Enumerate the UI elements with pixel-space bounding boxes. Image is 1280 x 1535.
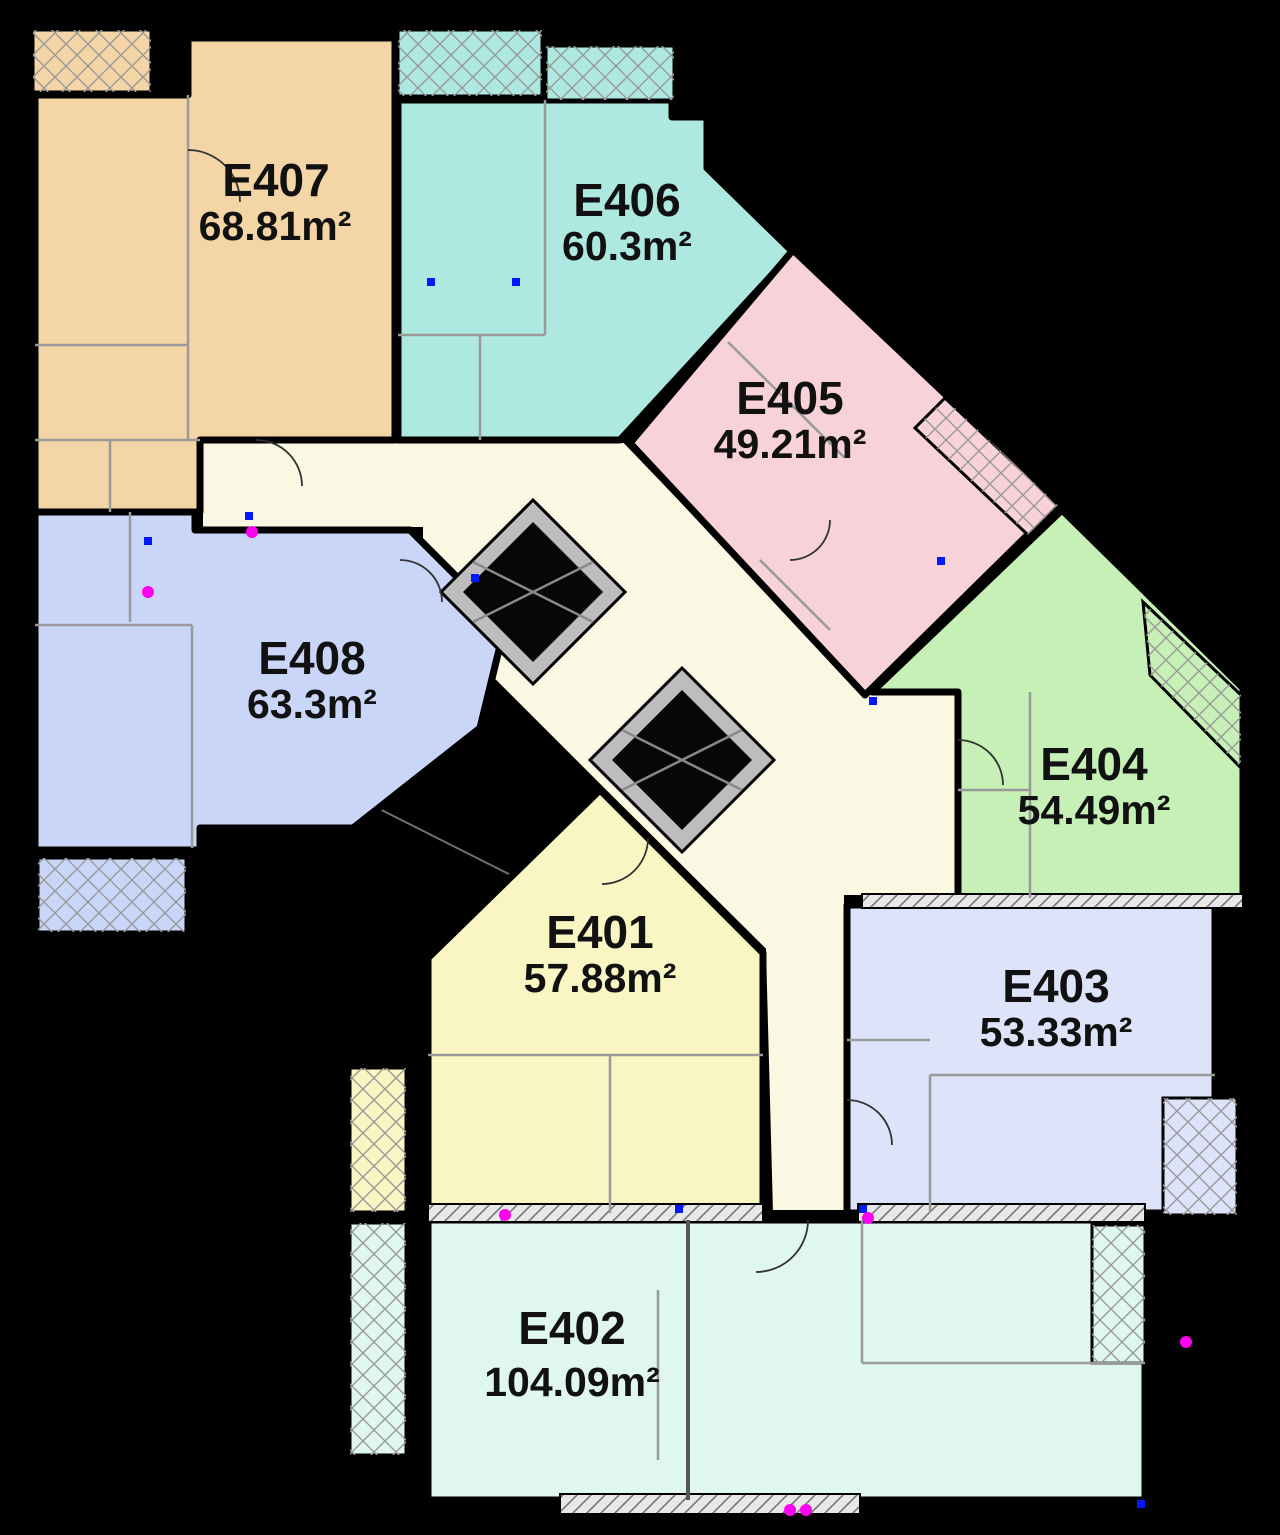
wall-band-e401-e402: [428, 1204, 763, 1222]
apartment-id-label-e407: E407: [222, 154, 329, 206]
apartment-id-label-e405: E405: [736, 372, 843, 424]
balcony-e407: [33, 30, 151, 92]
balcony-e403: [1163, 1098, 1237, 1215]
balcony-e401: [350, 1068, 406, 1212]
floor-plan-page: E407 68.81m² E406 60.3m² E405 49.21m² E4…: [0, 0, 1280, 1535]
apartment-id-label-e401: E401: [546, 906, 653, 958]
apartment-area-label-e407: 68.81m²: [199, 203, 352, 249]
apartment-id-label-e404: E404: [1040, 738, 1148, 790]
balcony-e402-right: [1092, 1225, 1145, 1363]
balcony-e402-left-hatch: [350, 1223, 406, 1455]
apartment-area-label-e403: 53.33m²: [980, 1009, 1133, 1055]
wall-band-e403-e402: [858, 1204, 1145, 1222]
apartment-region-e403[interactable]: [847, 905, 1215, 1213]
balcony-e406-right-hatch: [546, 46, 674, 100]
balcony-e406-left-hatch: [398, 30, 542, 96]
wall-band-e402-bottom: [560, 1494, 860, 1514]
apartment-area-label-e401: 57.88m²: [524, 955, 677, 1001]
apartment-area-label-e406: 60.3m²: [562, 223, 692, 269]
balcony-e403-hatch: [1163, 1098, 1237, 1215]
apartment-area-label-e408: 63.3m²: [247, 681, 377, 727]
apartment-area-label-e402: 104.09m²: [484, 1359, 660, 1405]
balcony-e406-right: [546, 46, 674, 100]
balcony-e402-left: [350, 1223, 406, 1455]
apartment-id-label-e403: E403: [1002, 960, 1109, 1012]
balcony-e402-right-hatch: [1092, 1225, 1145, 1363]
wall-band-e404-e403: [862, 894, 1243, 908]
apartment-area-label-e405: 49.21m²: [714, 421, 867, 467]
apartment-id-label-e408: E408: [258, 632, 365, 684]
balcony-e408: [38, 858, 186, 932]
apartment-id-label-e406: E406: [573, 174, 680, 226]
apartment-id-label-e402: E402: [518, 1302, 625, 1354]
balcony-e408-hatch: [38, 858, 186, 932]
floor-plan-canvas: E407 68.81m² E406 60.3m² E405 49.21m² E4…: [0, 0, 1280, 1535]
apartment-area-label-e404: 54.49m²: [1018, 787, 1171, 833]
balcony-e406-left: [398, 30, 542, 96]
balcony-e401-hatch: [350, 1068, 406, 1212]
balcony-e407-hatch: [33, 30, 151, 92]
